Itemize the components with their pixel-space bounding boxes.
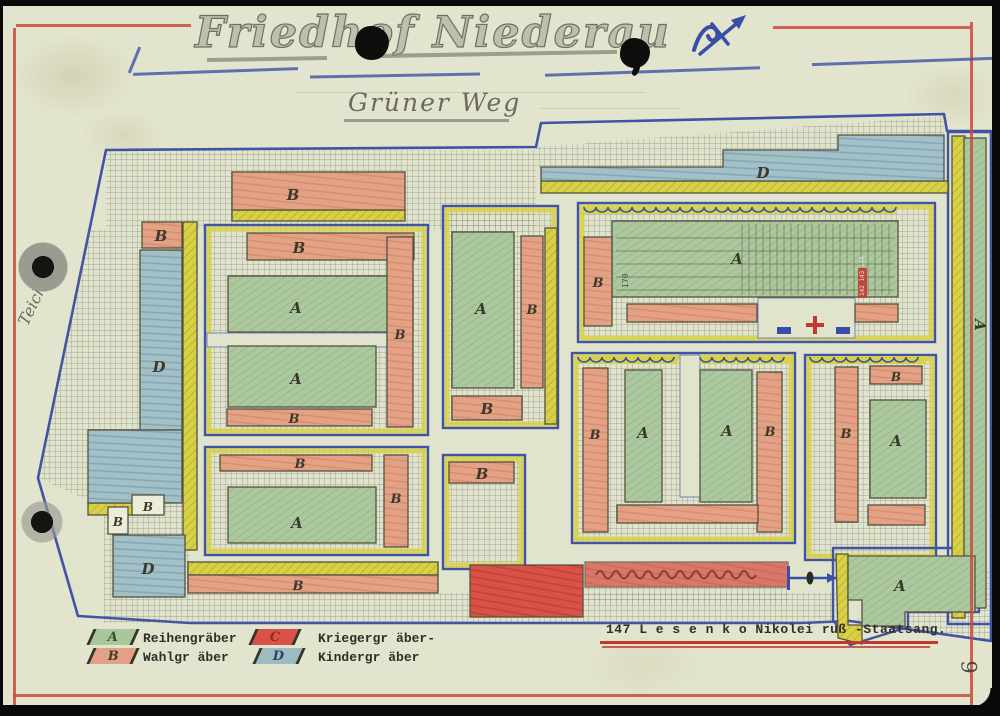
map-label-block-a-southeast: A (892, 577, 906, 595)
legend-label-c: Kriegergr äber- (318, 631, 435, 646)
map-label-block-b-c3-east: B (526, 303, 538, 318)
scan-corner-bottom-right (972, 688, 1000, 716)
map-deco-tick-12 (787, 566, 790, 590)
map-label-block-b-c2-east: B (390, 492, 402, 507)
legend-label-b: Wahlgr äber (143, 650, 229, 665)
legend-swatch-d: D (252, 648, 305, 664)
map-strip-note-red (585, 562, 788, 587)
punch-hole-left-1 (18, 242, 68, 292)
map-block-d-west-lower (88, 430, 182, 503)
map-label-block-b-c3-bottom: B (480, 400, 494, 418)
map-yellow-vertical-band (183, 222, 197, 550)
map-block-a-c1-upper (228, 276, 413, 332)
map-label-box-b-small-1: B (142, 500, 153, 514)
registry-note-underline-1 (600, 641, 938, 644)
map-label-block-a-c1-upper: A (288, 299, 302, 317)
legend-letter-a: A (108, 631, 118, 644)
legend-swatch-c: C (248, 629, 301, 645)
map-lane-court1 (207, 333, 387, 347)
map-label-block-b-c7-west: B (840, 427, 852, 442)
map-block-a-east-strip (964, 138, 986, 608)
registry-note-underline-2 (602, 646, 930, 648)
map-label-block-d-west: D (151, 358, 165, 376)
map-label-block-a-c6-left: A (635, 424, 649, 442)
scan-edge-bottom (0, 705, 1000, 716)
map-yellow-under-top-b (232, 210, 405, 221)
map-deco-smalltext-8: 142 143 144 (859, 256, 866, 296)
page-number: 9 (957, 660, 981, 673)
map-block-a-c1-lower (228, 346, 376, 407)
frame-line-top-right (773, 26, 971, 29)
map-strip-b-c5-south1 (627, 304, 757, 322)
map-label-block-b-top: B (286, 186, 300, 204)
map-label-block-b-c1-top: B (292, 239, 306, 257)
map-deco-bluemark-11 (836, 327, 850, 334)
map-yellow-above-bottom-b (188, 562, 438, 575)
legend-letter-c: C (270, 631, 280, 644)
map-label-block-a-c3: A (473, 300, 487, 318)
map-block-b-c7-west (835, 367, 858, 522)
map-deco-lens-14 (807, 572, 814, 585)
map-label-block-b-c2-top: B (294, 457, 306, 472)
frame-line-right (970, 22, 973, 705)
legend-swatch-b: B (86, 648, 139, 664)
map-block-a-c5 (612, 221, 898, 297)
map-yellow-court8-band (952, 136, 965, 618)
frame-line-left (13, 28, 16, 705)
scanned-cemetery-plan: DDDAAAAAAAAAABBBBBBBBBBBBBBBBBB170142 14… (0, 0, 1000, 716)
map-block-b-c6-west (583, 368, 608, 532)
map-yellow-court3-edge (545, 228, 557, 424)
map-label-block-a-c5: A (729, 250, 743, 268)
map-label-block-d-southwest: D (140, 560, 154, 578)
map-label-block-a-c2: A (289, 514, 303, 532)
map-strip-b-bottom (188, 575, 438, 593)
punch-hole-top-1 (355, 26, 389, 60)
registry-note: 147 L e s e n k o Nikolei ruß -Staatsang… (606, 622, 946, 637)
map-deco-bluemark-10 (777, 327, 791, 334)
map-strip-b-c5-south2 (855, 304, 898, 322)
map-lane-court6-notch (680, 355, 700, 497)
map-label-block-a-c7: A (888, 432, 902, 450)
map-strip-b-c6-south (617, 505, 758, 523)
map-label-strip-d-north: D (755, 164, 769, 182)
map-label-block-b-c4: B (475, 465, 489, 483)
map-block-b-top (232, 172, 405, 210)
scan-edge-top (0, 0, 1000, 6)
map-label-block-b-c1-bottom: B (288, 412, 300, 427)
map-block-d-west (140, 250, 182, 430)
map-yellow-under-d-strip (541, 181, 948, 193)
legend-label-d: Kindergr äber (318, 650, 419, 665)
legend-letter-d: D (273, 650, 284, 663)
punch-hole-left-2 (20, 500, 64, 544)
map-label-block-b-c6-west: B (589, 428, 601, 443)
frame-line-top-left (16, 24, 191, 27)
frame-line-bottom (13, 694, 970, 697)
map-label-block-a-east-strip: A (971, 317, 989, 331)
map-label-block-b-c1-east: B (394, 328, 406, 343)
faint-rule-2 (540, 108, 680, 109)
map-label-block-b-west-small: B (154, 227, 168, 245)
map-deco-smalltext-7: 170 (621, 273, 630, 288)
map-label-block-b-c5-west: B (592, 276, 604, 291)
north-arrow-icon (686, 6, 758, 62)
map-hatch-under-note-strip (583, 586, 788, 604)
map-label-block-a-c6-right: A (719, 422, 733, 440)
street-label-underline (344, 119, 509, 122)
map-block-b-c1-bottom (227, 409, 372, 426)
map-label-block-b-c7-top: B (890, 370, 901, 384)
faint-rule-1 (295, 92, 645, 93)
scan-edge-left (0, 0, 3, 716)
legend-swatch-a: A (86, 629, 139, 645)
map-deco-cross-9-h (806, 323, 824, 327)
map-label-strip-b-bottom: B (292, 579, 304, 594)
map-strip-b-c7-south (868, 505, 925, 525)
map-block-c-war-graves (470, 565, 583, 617)
map-block-b-c6-east (757, 372, 782, 532)
map-label-box-b-small-2: B (112, 515, 123, 529)
scan-edge-right (992, 0, 1000, 716)
map-label-block-b-c6-east: B (764, 425, 776, 440)
legend-label-a: Reihengräber (143, 631, 237, 646)
legend-letter-b: B (108, 650, 119, 663)
map-label-block-a-c1-lower: A (288, 370, 302, 388)
